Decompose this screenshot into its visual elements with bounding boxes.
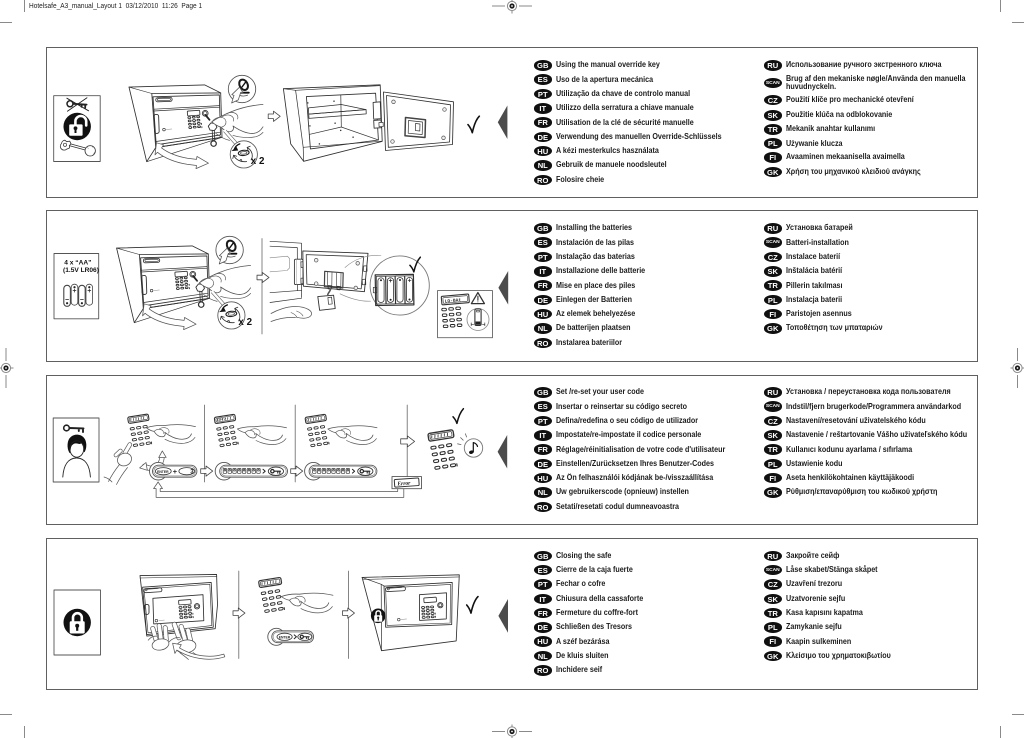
svg-text:Error: Error	[396, 481, 411, 488]
svg-text:(1.5V LR06): (1.5V LR06)	[63, 267, 99, 274]
svg-text:3: 3	[190, 469, 194, 476]
svg-text:+: +	[173, 467, 178, 476]
svg-text:4 x “AA”: 4 x “AA”	[64, 259, 91, 266]
svg-text:ENTER: ENTER	[279, 636, 291, 640]
svg-text:x 2: x 2	[251, 156, 265, 167]
svg-text:ENTER: ENTER	[157, 470, 169, 474]
